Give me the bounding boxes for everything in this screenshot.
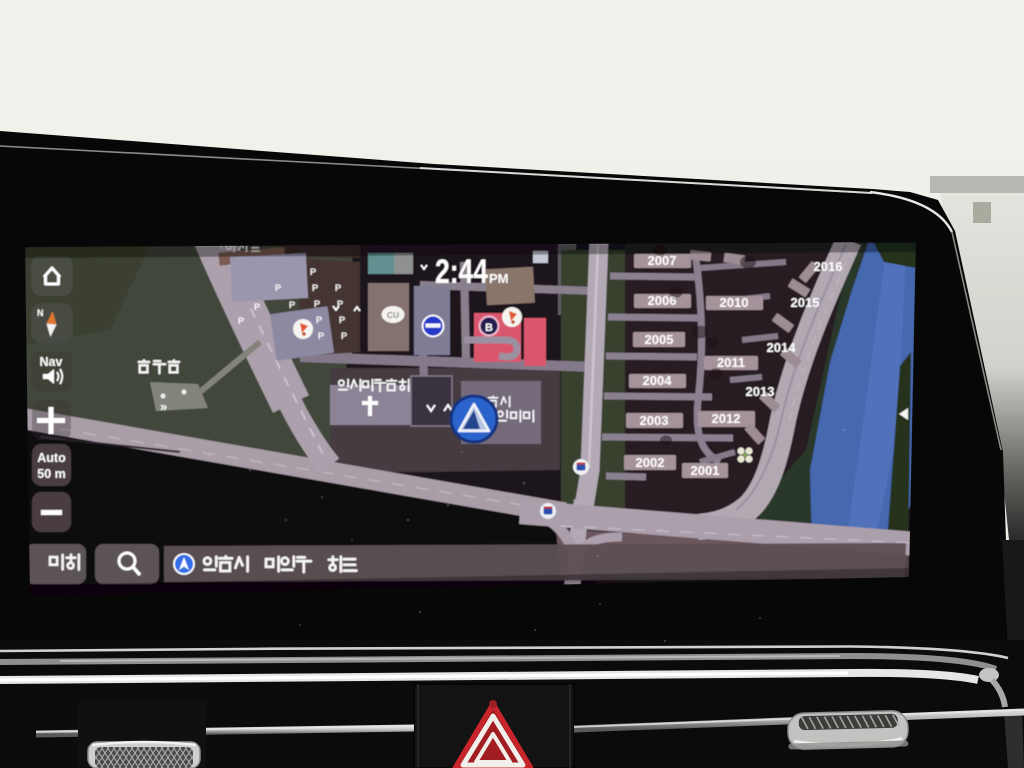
svg-text:»: »	[160, 399, 167, 414]
svg-text:2003: 2003	[640, 413, 669, 428]
svg-text:P: P	[314, 299, 321, 310]
svg-text:P: P	[254, 302, 261, 313]
svg-text:B: B	[485, 322, 493, 334]
svg-text:P: P	[318, 331, 325, 342]
svg-text:P: P	[339, 315, 346, 326]
svg-text:PM: PM	[489, 271, 509, 286]
svg-text:2002: 2002	[636, 455, 665, 470]
svg-text:2014: 2014	[767, 340, 797, 355]
svg-text:2013: 2013	[746, 384, 775, 399]
svg-text:2001: 2001	[691, 463, 720, 478]
svg-text:2004: 2004	[643, 373, 673, 388]
svg-text:P: P	[316, 315, 323, 326]
svg-text:P: P	[275, 283, 282, 294]
svg-text:2012: 2012	[712, 411, 741, 426]
svg-text:P: P	[341, 331, 348, 342]
svg-text:2016: 2016	[814, 259, 843, 274]
svg-text:P: P	[310, 267, 317, 278]
svg-text:2015: 2015	[791, 295, 820, 310]
svg-text:P: P	[335, 283, 342, 294]
svg-text:2:44: 2:44	[435, 253, 488, 291]
svg-text:Nav: Nav	[40, 355, 63, 369]
svg-text:P: P	[289, 300, 296, 311]
svg-text:2005: 2005	[645, 332, 674, 347]
svg-text:50 m: 50 m	[37, 467, 66, 481]
svg-text:N: N	[37, 308, 44, 318]
svg-text:CU: CU	[387, 310, 399, 320]
svg-text:Auto: Auto	[37, 451, 66, 465]
svg-text:P: P	[238, 316, 245, 327]
svg-text:2011: 2011	[717, 355, 745, 370]
svg-text:2010: 2010	[720, 295, 749, 310]
svg-text:P: P	[312, 283, 319, 294]
